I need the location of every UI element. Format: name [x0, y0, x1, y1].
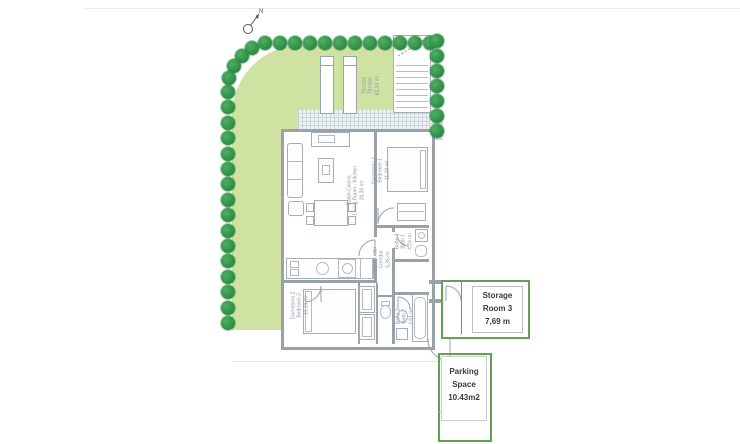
- sofa-cushion-line: [288, 179, 302, 180]
- tree-icon: [258, 36, 272, 50]
- dining-table: [314, 200, 348, 226]
- tree-icon: [318, 36, 332, 50]
- tree-icon: [221, 85, 235, 99]
- tree-icon: [221, 116, 235, 130]
- storage-room-label: Storage Room 3 7,69 m: [472, 286, 523, 333]
- svg-text:N: N: [259, 9, 263, 15]
- armchair: [288, 201, 304, 216]
- room-label-corridor: DistribuidorCorridor5,35 m²: [373, 224, 392, 294]
- tree-icon: [430, 64, 444, 78]
- tree-icon: [378, 36, 392, 50]
- tree-icon: [222, 71, 236, 85]
- tree-icon: [221, 162, 235, 176]
- door-arc-icon: [443, 284, 463, 304]
- parking-space-label: Parking Space 10.43m2: [441, 356, 487, 421]
- storage-wall-stub: [429, 299, 441, 303]
- tree-icon: [430, 79, 444, 93]
- tree-icon: [221, 224, 235, 238]
- tree-icon: [221, 239, 235, 253]
- scan-line-bottom: [232, 361, 445, 362]
- tree-icon: [430, 94, 444, 108]
- tree-icon: [430, 34, 444, 48]
- tree-icon: [303, 36, 317, 50]
- room-label-bedroom2: Dormitorio 2Bedroom 210,14 m²: [291, 270, 310, 340]
- sunbed: [343, 56, 357, 114]
- tree-icon: [221, 147, 235, 161]
- floor-plan-sheet: Terraza Terrace 62,34 m² N: [0, 0, 740, 444]
- tv: [318, 135, 335, 143]
- closet-inner: [362, 289, 372, 310]
- sofa-cushion-line: [288, 161, 302, 162]
- tree-icon: [221, 316, 235, 330]
- tree-icon: [393, 36, 407, 50]
- wall: [376, 295, 392, 297]
- stair-treads: [396, 60, 428, 110]
- room-label-living: Salón-CocinaLiving Room - Kitchen29,30 m…: [347, 155, 366, 225]
- tree-icon: [221, 301, 235, 315]
- sunbed: [320, 56, 334, 114]
- tree-icon: [430, 49, 444, 63]
- tree-icon: [363, 36, 377, 50]
- bathtub-inner: [414, 297, 426, 339]
- fridge: [360, 258, 373, 279]
- toilet: [380, 305, 391, 319]
- tree-icon: [333, 36, 347, 50]
- scan-line-top: [85, 8, 740, 9]
- kitchen-sink: [290, 261, 299, 268]
- dining-chair: [306, 203, 314, 212]
- tree-icon: [221, 270, 235, 284]
- coffee-table-tray: [322, 165, 330, 175]
- north-arrow-icon: N: [240, 8, 266, 38]
- tree-icon: [430, 124, 444, 138]
- tree-icon: [348, 36, 362, 50]
- cooktop: [316, 262, 329, 275]
- room-label-bath1: Baño 1Bath 14,24 m²: [395, 206, 414, 276]
- tree-icon: [430, 109, 444, 123]
- room-label-bedroom1: Dormitorio 1Bedroom 111,19 m²: [372, 135, 391, 205]
- tree-icon: [221, 193, 235, 207]
- sink-basin: [418, 232, 425, 239]
- dining-chair: [306, 216, 314, 225]
- pillow: [420, 150, 426, 189]
- toilet: [415, 245, 427, 257]
- storage-wall-stub: [429, 280, 441, 284]
- tree-icon: [408, 36, 422, 50]
- room-label-bath2: Baño 2Bath 23,91 m²: [396, 281, 415, 351]
- closet-inner: [362, 317, 372, 337]
- tree-icon: [273, 36, 287, 50]
- terrace-label: Terraza Terrace 62,34 m²: [362, 50, 381, 120]
- oven-dial: [342, 263, 353, 274]
- door-arc-icon: [376, 206, 396, 226]
- sofa: [287, 143, 303, 198]
- tree-icon: [288, 36, 302, 50]
